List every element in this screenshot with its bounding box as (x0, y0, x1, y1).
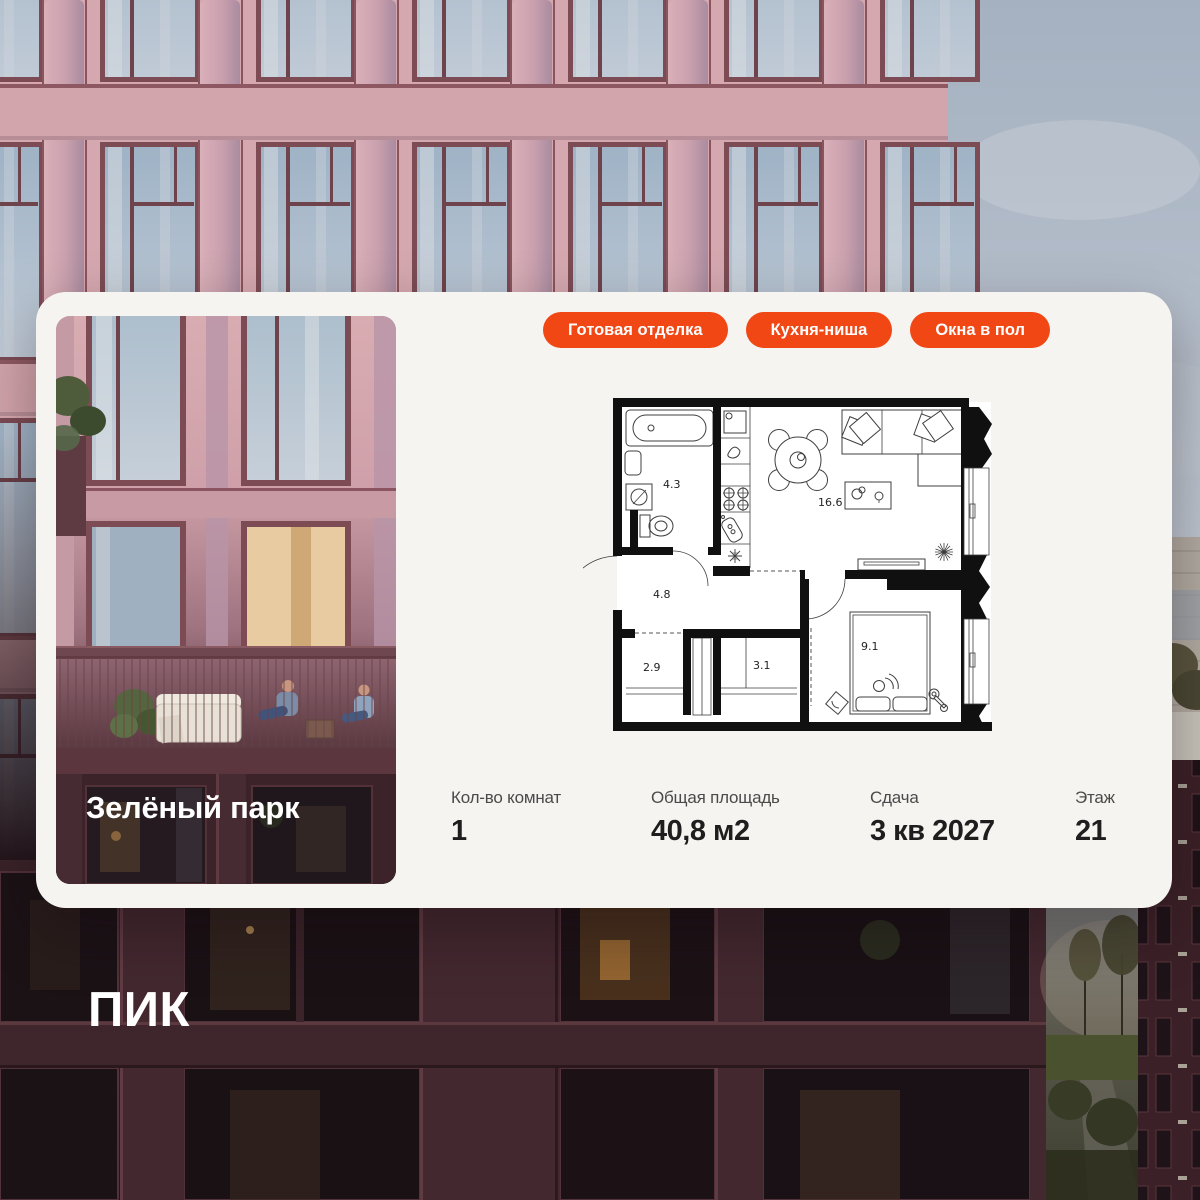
stat-rooms-value: 1 (451, 815, 561, 848)
stat-area-value: 40,8 м2 (651, 815, 780, 848)
room-label-storage: 3.1 (753, 659, 771, 672)
room-label-bathroom: 4.3 (663, 478, 681, 491)
tag-floor-windows: Окна в пол (910, 312, 1050, 348)
stat-completion: Сдача 3 кв 2027 (870, 788, 995, 848)
pik-logo: ПИК (88, 982, 190, 1038)
stat-completion-label: Сдача (870, 788, 995, 808)
listing-card: Зелёный парк Готовая отделка Кухня-ниша … (36, 292, 1172, 908)
fridge-icon (728, 549, 742, 563)
feature-tags: Готовая отделка Кухня-ниша Окна в пол (543, 312, 1050, 348)
stat-floor-label: Этаж (1075, 788, 1115, 808)
stat-floor: Этаж 21 (1075, 788, 1115, 848)
room-label-hallway: 4.8 (653, 588, 671, 601)
room-label-wardrobe: 2.9 (643, 661, 661, 674)
stat-completion-value: 3 кв 2027 (870, 815, 995, 848)
stat-rooms: Кол-во комнат 1 (451, 788, 561, 848)
project-name: Зелёный парк (86, 790, 299, 826)
stat-floor-value: 21 (1075, 815, 1115, 848)
room-label-kitchen-living: 16.6 (818, 496, 843, 509)
stat-area-label: Общая площадь (651, 788, 780, 808)
stat-rooms-label: Кол-во комнат (451, 788, 561, 808)
ad-banner: Зелёный парк Готовая отделка Кухня-ниша … (0, 0, 1200, 1200)
tag-kitchen-niche: Кухня-ниша (746, 312, 893, 348)
floorplan: 4.3 16.6 4.8 2.9 3.1 9.1 (583, 396, 1023, 735)
stat-area: Общая площадь 40,8 м2 (651, 788, 780, 848)
room-label-bedroom: 9.1 (861, 640, 879, 653)
tag-finishing: Готовая отделка (543, 312, 728, 348)
